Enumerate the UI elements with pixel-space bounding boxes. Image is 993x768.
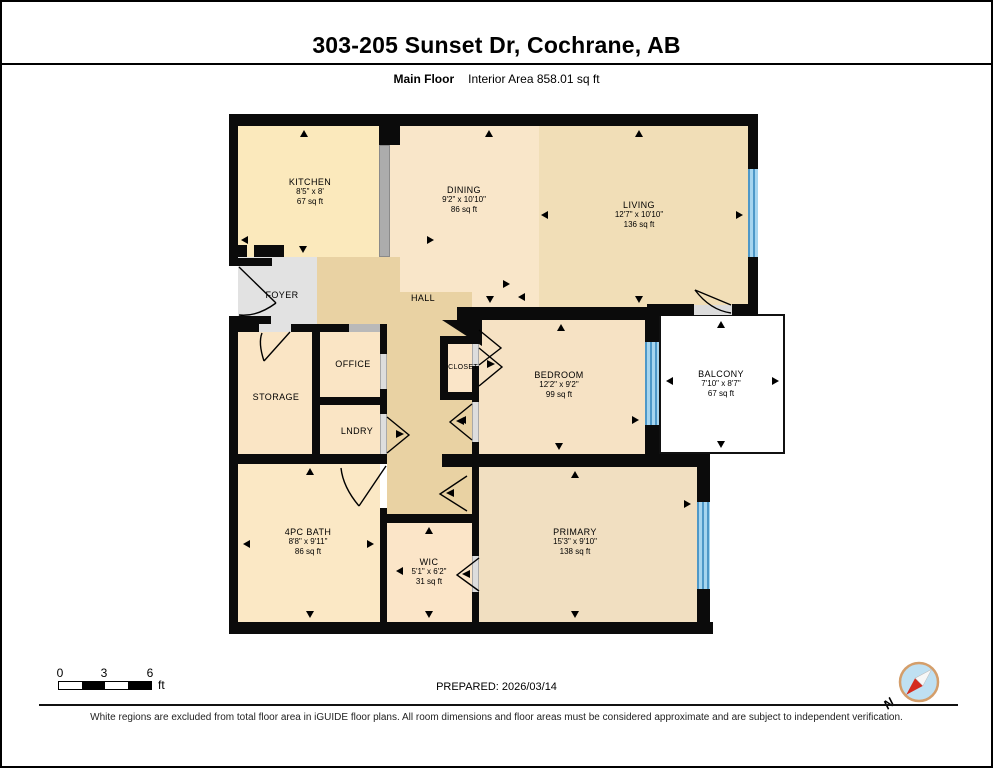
scale-tick-0: 0 xyxy=(57,666,64,680)
room-label-laundry: LNDRY xyxy=(341,426,373,436)
floorplan-canvas: KITCHEN8'5" x 8'67 sq ft DINING9'2" x 10… xyxy=(229,114,787,636)
room-hall-vertical xyxy=(387,292,472,514)
hall-door-threshold xyxy=(472,402,479,442)
room-label-primary: PRIMARY15'3" x 9'10"138 sq ft xyxy=(553,527,597,557)
interior-area-label: Interior Area 858.01 sq ft xyxy=(468,72,599,86)
room-label-kitchen: KITCHEN8'5" x 8'67 sq ft xyxy=(289,177,331,207)
room-label-storage: STORAGE xyxy=(253,392,300,402)
bedroom-door-threshold xyxy=(472,328,479,366)
storage-opening-threshold xyxy=(259,324,291,332)
floorplan-page: 303-205 Sunset Dr, Cochrane, AB Main Flo… xyxy=(0,0,993,768)
room-label-bath: 4PC BATH8'8" x 9'11"86 sq ft xyxy=(285,527,332,557)
compass-icon xyxy=(895,658,943,706)
disclaimer-text: White regions are excluded from total fl… xyxy=(2,712,991,723)
scale-tick-6: 6 xyxy=(147,666,154,680)
footer-divider xyxy=(39,704,958,706)
room-label-office: OFFICE xyxy=(335,359,370,369)
office-door-threshold xyxy=(380,354,387,389)
room-label-living: LIVING12'7" x 10'10"136 sq ft xyxy=(615,200,663,230)
room-label-hall: HALL xyxy=(411,293,435,303)
bedroom-balcony-window xyxy=(645,342,659,425)
room-label-closet: CLOSET xyxy=(448,363,478,373)
header-divider xyxy=(2,63,991,65)
primary-window xyxy=(697,502,710,589)
laundry-door-threshold xyxy=(380,414,387,454)
room-label-bedroom: BEDROOM12'2" x 9'2"99 sq ft xyxy=(534,370,583,400)
prepared-date: PREPARED: 2026/03/14 xyxy=(2,681,991,693)
page-title: 303-205 Sunset Dr, Cochrane, AB xyxy=(2,32,991,59)
scale-tick-3: 3 xyxy=(101,666,108,680)
floor-label: Main Floor xyxy=(393,72,454,86)
living-window xyxy=(748,169,758,257)
room-label-balcony: BALCONY7'10" x 8'7"67 sq ft xyxy=(698,369,744,399)
floor-subheader: Main FloorInterior Area 858.01 sq ft xyxy=(2,72,991,86)
room-dining xyxy=(390,126,539,307)
room-label-foyer: FOYER xyxy=(265,290,298,300)
wic-door-threshold xyxy=(472,556,479,592)
room-label-dining: DINING9'2" x 10'10"86 sq ft xyxy=(442,185,486,215)
room-label-wic: WIC5'1" x 6'2"31 sq ft xyxy=(412,557,447,587)
office-top-gray xyxy=(349,324,380,332)
balcony-door-threshold xyxy=(694,305,732,315)
fridge-fixture xyxy=(379,145,390,257)
